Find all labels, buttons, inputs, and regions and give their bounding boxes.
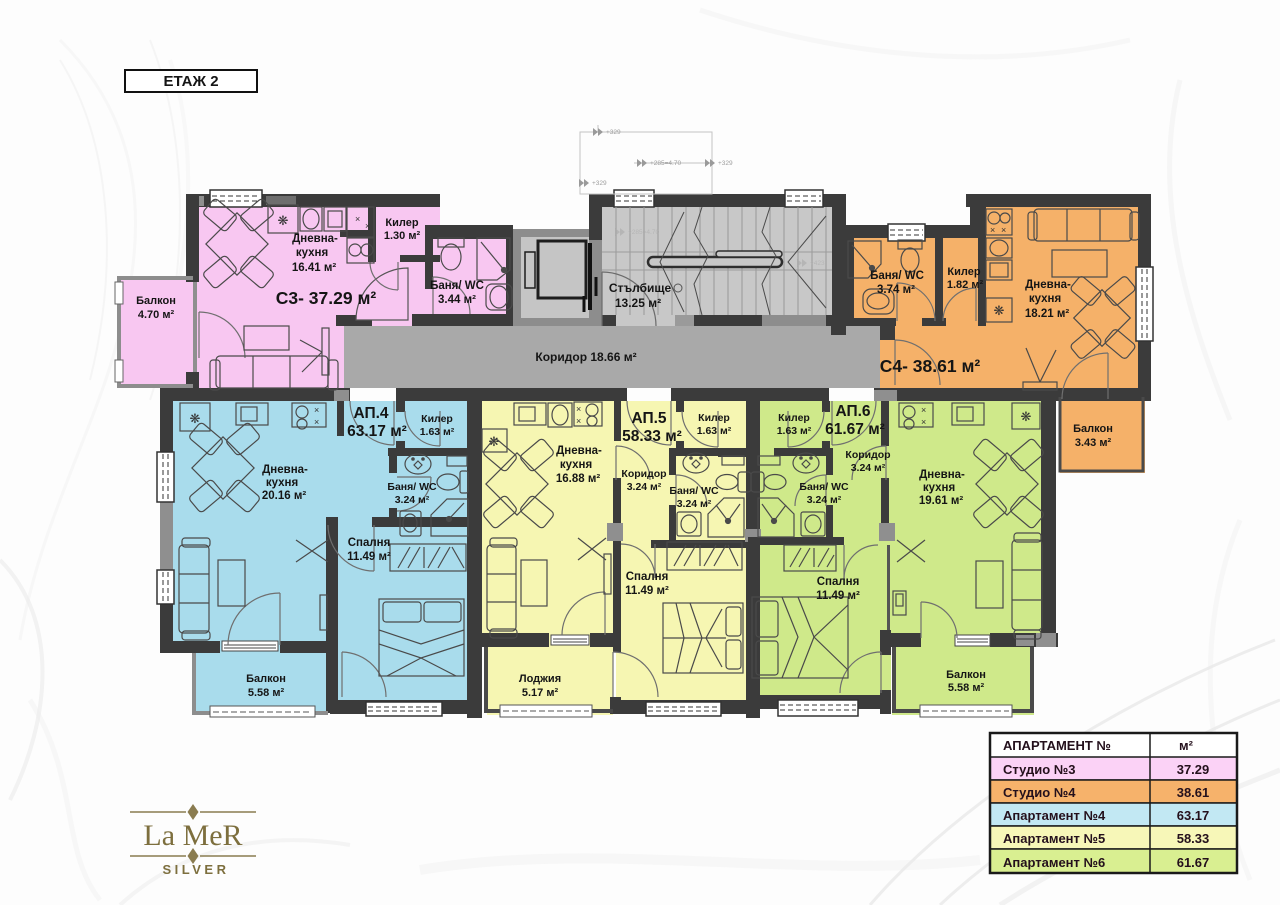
svg-text:Баня/ WC: Баня/ WC	[669, 485, 719, 497]
svg-text:3.24 м²: 3.24 м²	[677, 498, 712, 510]
svg-text:Балкон: Балкон	[1073, 423, 1113, 435]
svg-text:Коридор: Коридор	[621, 468, 666, 480]
svg-text:Баня/ WC: Баня/ WC	[430, 280, 484, 292]
svg-text:АП.5: АП.5	[631, 410, 666, 427]
svg-text:Стълбище: Стълбище	[609, 281, 672, 295]
svg-text:Баня/ WC: Баня/ WC	[799, 481, 849, 493]
svg-text:Балкон: Балкон	[136, 295, 176, 307]
svg-text:13.25 м²: 13.25 м²	[615, 296, 661, 310]
svg-text:❋: ❋	[994, 303, 1005, 318]
svg-text:Баня/ WC: Баня/ WC	[387, 481, 437, 493]
svg-text:1.63 м²: 1.63 м²	[697, 425, 732, 437]
svg-text:3.24 м²: 3.24 м²	[395, 494, 430, 506]
svg-text:Килер: Килер	[385, 217, 418, 229]
svg-text:Студио №3: Студио №3	[1003, 762, 1076, 777]
svg-text:кухня: кухня	[266, 477, 298, 489]
svg-text:Спалня: Спалня	[626, 571, 669, 583]
svg-text:Килер: Килер	[778, 412, 810, 424]
svg-text:Лоджия: Лоджия	[519, 673, 561, 685]
svg-text:1.63 м²: 1.63 м²	[777, 425, 812, 437]
svg-text:Дневна-: Дневна-	[556, 445, 602, 457]
svg-text:37.29: 37.29	[1177, 762, 1210, 777]
svg-text:La MeR: La MeR	[143, 819, 242, 852]
svg-text:×: ×	[921, 417, 926, 427]
svg-text:+329: +329	[592, 180, 607, 187]
svg-text:Коридор: Коридор	[845, 449, 890, 461]
svg-text:Спалня: Спалня	[817, 576, 860, 588]
svg-text:+285=4.70: +285=4.70	[650, 160, 681, 167]
svg-text:+423: +423	[810, 260, 825, 267]
svg-text:×: ×	[1001, 225, 1006, 235]
svg-text:16.88 м²: 16.88 м²	[556, 473, 600, 485]
svg-text:Дневна-: Дневна-	[292, 233, 338, 245]
svg-text:Коридор 18.66 м²: Коридор 18.66 м²	[535, 350, 636, 364]
svg-text:Апартамент №4: Апартамент №4	[1003, 808, 1106, 823]
svg-text:4.70 м²: 4.70 м²	[138, 309, 175, 321]
svg-text:Спалня: Спалня	[348, 537, 391, 549]
svg-text:Студио №4: Студио №4	[1003, 785, 1076, 800]
svg-text:C3- 37.29 м²: C3- 37.29 м²	[276, 288, 377, 308]
svg-text:Килер: Килер	[421, 413, 453, 425]
svg-text:кухня: кухня	[296, 247, 328, 259]
svg-text:×: ×	[314, 405, 319, 415]
svg-text:кухня: кухня	[1029, 293, 1061, 305]
svg-text:кухня: кухня	[560, 459, 592, 471]
svg-text:АП.6: АП.6	[835, 403, 870, 420]
svg-text:20.16 м²: 20.16 м²	[262, 490, 306, 502]
svg-text:11.49 м²: 11.49 м²	[816, 590, 860, 602]
svg-text:5.17 м²: 5.17 м²	[522, 687, 559, 699]
svg-text:19.61 м²: 19.61 м²	[919, 495, 963, 507]
svg-text:3.24 м²: 3.24 м²	[627, 481, 662, 493]
svg-text:3.44 м²: 3.44 м²	[438, 294, 476, 306]
svg-text:❋: ❋	[489, 434, 500, 449]
svg-text:C4- 38.61 м²: C4- 38.61 м²	[880, 356, 981, 376]
svg-text:58.33 м²: 58.33 м²	[622, 428, 682, 445]
svg-text:×: ×	[365, 221, 370, 231]
svg-text:61.67: 61.67	[1177, 855, 1210, 870]
svg-text:❋: ❋	[278, 213, 289, 228]
svg-text:АПАРТАМЕНТ №: АПАРТАМЕНТ №	[1003, 738, 1111, 753]
svg-text:×: ×	[355, 214, 360, 224]
svg-text:Балкон: Балкон	[246, 673, 286, 685]
svg-text:63.17 м²: 63.17 м²	[347, 423, 407, 440]
svg-text:Дневна-: Дневна-	[1025, 279, 1071, 291]
svg-text:11.49 м²: 11.49 м²	[625, 585, 669, 597]
svg-text:1.63 м²: 1.63 м²	[420, 426, 455, 438]
svg-text:×: ×	[314, 417, 319, 427]
svg-text:кухня: кухня	[923, 482, 955, 494]
svg-text:Баня/ WC: Баня/ WC	[870, 270, 924, 282]
svg-text:3.24 м²: 3.24 м²	[851, 462, 886, 474]
svg-text:5.58 м²: 5.58 м²	[248, 687, 285, 699]
svg-text:×: ×	[990, 225, 995, 235]
svg-text:×: ×	[576, 404, 581, 414]
svg-text:38.61: 38.61	[1177, 785, 1210, 800]
svg-text:Апартамент №5: Апартамент №5	[1003, 831, 1105, 846]
svg-text:×: ×	[576, 416, 581, 426]
svg-text:Дневна-: Дневна-	[262, 464, 308, 476]
svg-text:SILVER: SILVER	[163, 862, 230, 877]
svg-text:3.43 м²: 3.43 м²	[1075, 437, 1112, 449]
svg-text:АП.4: АП.4	[353, 405, 388, 422]
svg-text:+329: +329	[718, 160, 733, 167]
svg-text:+329: +329	[606, 129, 621, 136]
svg-text:63.17: 63.17	[1177, 808, 1210, 823]
svg-text:16.41 м²: 16.41 м²	[292, 262, 336, 274]
svg-text:Килер: Килер	[698, 412, 730, 424]
svg-text:18.21 м²: 18.21 м²	[1025, 308, 1069, 320]
svg-text:Балкон: Балкон	[946, 669, 986, 681]
svg-text:×: ×	[921, 405, 926, 415]
svg-text:ЕТАЖ 2: ЕТАЖ 2	[163, 73, 218, 90]
svg-text:1.30 м²: 1.30 м²	[384, 230, 421, 242]
svg-text:58.33: 58.33	[1177, 831, 1210, 846]
svg-text:5.58 м²: 5.58 м²	[948, 682, 985, 694]
svg-text:3.24 м²: 3.24 м²	[807, 494, 842, 506]
svg-text:❋: ❋	[1021, 409, 1032, 424]
svg-text:1.82 м²: 1.82 м²	[947, 279, 984, 291]
svg-text:+285=4.70: +285=4.70	[628, 229, 659, 236]
svg-text:Килер: Килер	[947, 266, 980, 278]
svg-text:Апартамент №6: Апартамент №6	[1003, 855, 1105, 870]
svg-text:3.74 м²: 3.74 м²	[877, 284, 915, 296]
svg-text:11.49 м²: 11.49 м²	[347, 551, 391, 563]
svg-text:Дневна-: Дневна-	[919, 469, 965, 481]
svg-text:61.67 м²: 61.67 м²	[825, 421, 885, 438]
svg-text:м²: м²	[1179, 738, 1194, 753]
